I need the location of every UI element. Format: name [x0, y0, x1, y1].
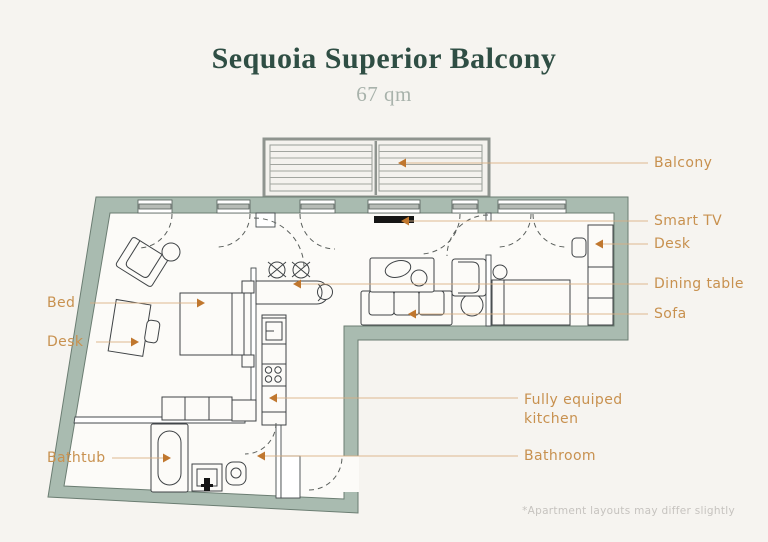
side-table [162, 243, 180, 261]
label-kitchen: Fully equiped kitchen [524, 391, 623, 429]
wardrobe [162, 397, 256, 421]
window [498, 200, 566, 213]
window [138, 200, 172, 213]
label-dining-table: Dining table [654, 277, 744, 291]
sink [192, 464, 222, 491]
toilet [226, 462, 246, 485]
balcony-area [264, 139, 489, 197]
window [300, 200, 335, 213]
label-bathroom: Bathroom [524, 449, 596, 463]
desk-chair [144, 320, 160, 344]
label-bed: Bed [47, 296, 75, 310]
kitchen-units [262, 315, 286, 425]
label-desk-left: Desk [47, 335, 83, 349]
nightstand [242, 355, 254, 367]
window [452, 200, 478, 213]
window [217, 200, 250, 213]
bed [180, 281, 254, 367]
label-sofa: Sofa [654, 307, 687, 321]
page-subtitle: 67 qm [0, 82, 768, 107]
desk-chair [572, 238, 586, 257]
fridge [262, 318, 286, 344]
disclaimer-footnote: *Apartment layouts may differ slightly [522, 505, 735, 517]
page-title: Sequoia Superior Balcony [0, 42, 768, 76]
entry-closet [281, 456, 300, 498]
armchair [452, 259, 486, 296]
window [368, 200, 420, 213]
label-balcony: Balcony [654, 156, 712, 170]
bar-stool [292, 262, 310, 278]
label-desk-right: Desk [654, 237, 690, 251]
nightstand [242, 281, 254, 293]
floorplan-page: Sequoia Superior Balcony 67 qm Balcony S… [0, 0, 768, 542]
pouf [461, 294, 483, 316]
bar-stool [268, 262, 286, 278]
sofa [361, 291, 452, 325]
second-bed [492, 280, 570, 325]
entrance-door-gap [343, 456, 359, 492]
label-bathtub: Bathtub [47, 451, 106, 465]
label-smart-tv: Smart TV [654, 214, 722, 228]
side-table [493, 265, 507, 279]
coffee-table [370, 258, 434, 292]
